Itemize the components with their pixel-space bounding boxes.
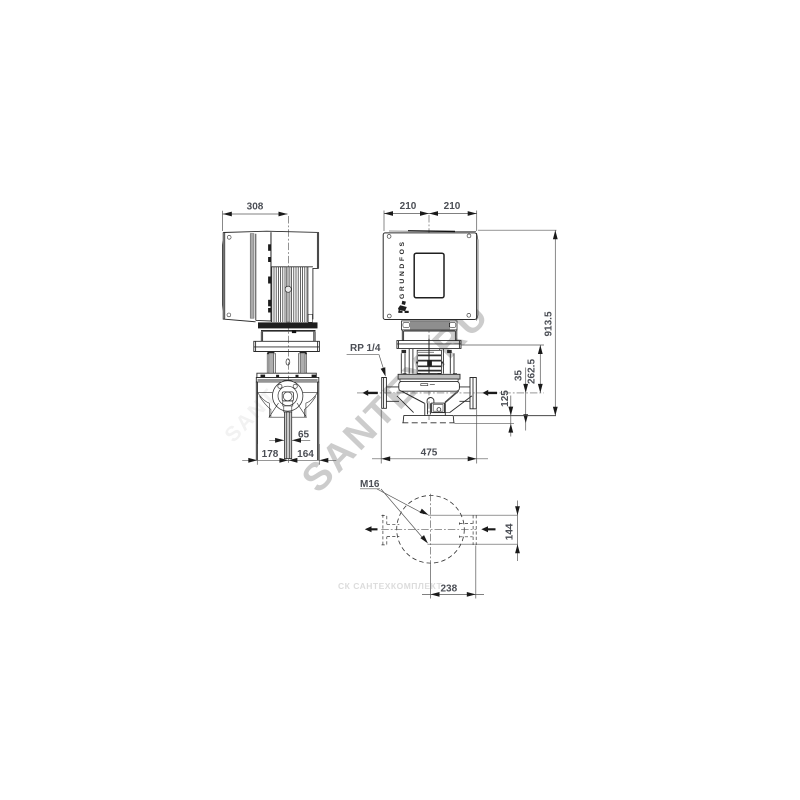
- svg-text:178: 178: [262, 449, 279, 460]
- svg-text:СК САНТЕХКОМПЛЕКТ: СК САНТЕХКОМПЛЕКТ: [338, 581, 442, 591]
- svg-text:210: 210: [444, 201, 461, 212]
- svg-text:125: 125: [500, 390, 511, 407]
- svg-text:164: 164: [297, 449, 314, 460]
- svg-text:913.5: 913.5: [544, 311, 555, 336]
- svg-text:RP 1/4: RP 1/4: [350, 343, 381, 354]
- svg-text:475: 475: [421, 447, 438, 458]
- svg-text:238: 238: [440, 583, 457, 594]
- svg-text:144: 144: [505, 523, 516, 540]
- svg-text:308: 308: [247, 202, 264, 213]
- svg-text:210: 210: [400, 201, 417, 212]
- svg-text:M16: M16: [360, 479, 380, 490]
- svg-text:262.5: 262.5: [527, 359, 538, 384]
- svg-text:35: 35: [513, 370, 524, 382]
- svg-text:GRUNDFOS: GRUNDFOS: [399, 239, 406, 299]
